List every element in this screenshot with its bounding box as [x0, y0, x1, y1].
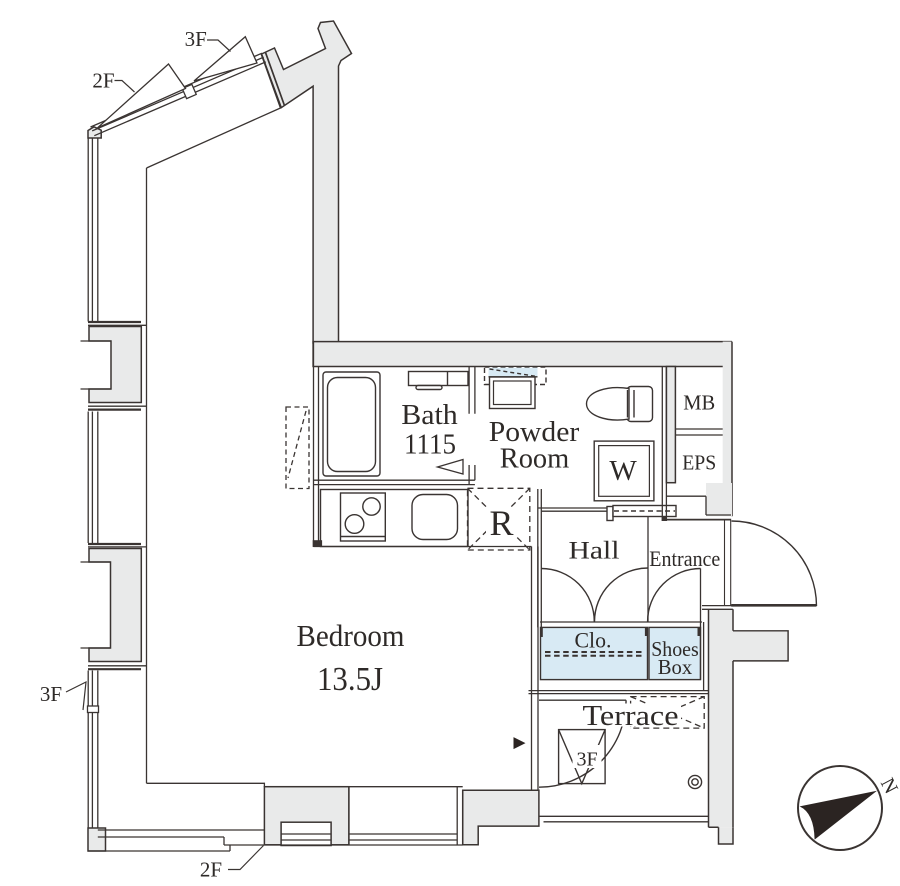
svg-text:1115: 1115: [404, 429, 456, 461]
svg-text:Bedroom: Bedroom: [297, 618, 405, 653]
svg-text:3F: 3F: [576, 749, 597, 771]
svg-text:Hall: Hall: [569, 538, 620, 565]
svg-text:2F: 2F: [92, 69, 114, 93]
svg-text:Box: Box: [658, 655, 693, 679]
svg-text:R: R: [489, 503, 513, 543]
svg-text:13.5J: 13.5J: [317, 661, 383, 698]
svg-text:Terrace: Terrace: [583, 701, 679, 732]
svg-text:2F: 2F: [200, 858, 222, 882]
svg-text:3F: 3F: [185, 27, 207, 51]
svg-text:Bath: Bath: [401, 399, 458, 431]
svg-text:Room: Room: [500, 444, 570, 475]
svg-text:Clo.: Clo.: [575, 628, 612, 653]
svg-text:3F: 3F: [40, 682, 62, 706]
svg-text:Entrance: Entrance: [649, 546, 720, 571]
svg-text:EPS: EPS: [682, 451, 716, 475]
svg-text:W: W: [609, 455, 637, 487]
svg-text:MB: MB: [683, 391, 715, 415]
